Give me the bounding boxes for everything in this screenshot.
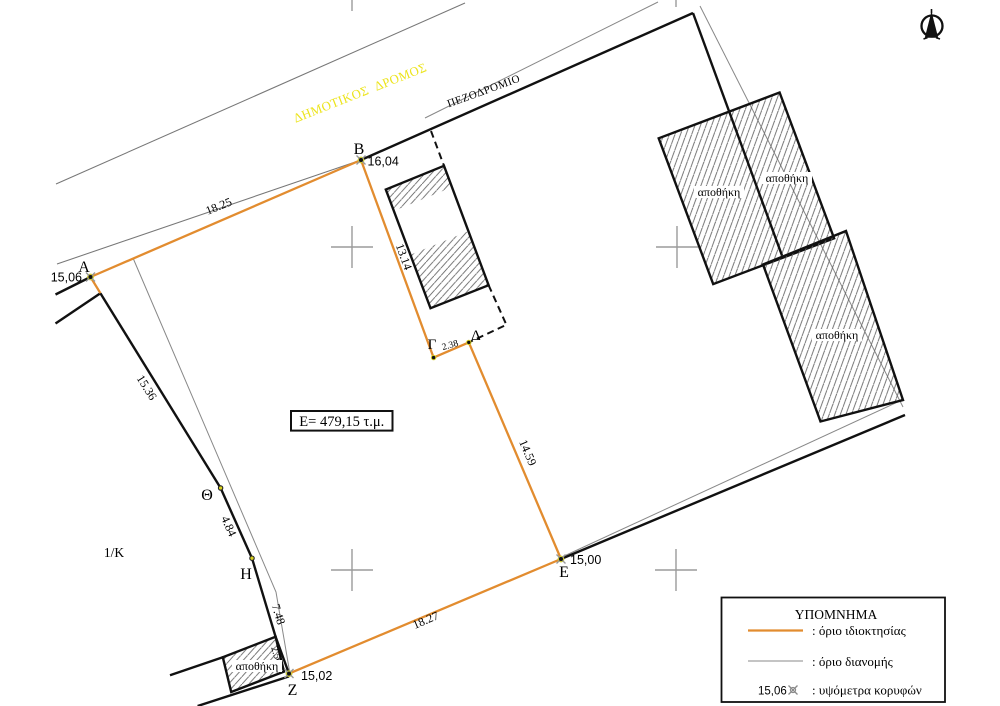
- svg-text:αποθήκη: αποθήκη: [236, 659, 279, 673]
- svg-text:ΥΠOMNHMA: ΥΠOMNHMA: [795, 607, 878, 622]
- svg-text:αποθήκη: αποθήκη: [698, 185, 741, 199]
- svg-text:Δ: Δ: [471, 328, 481, 344]
- svg-text:15,06: 15,06: [51, 271, 82, 285]
- svg-text:E= 479,15 τ.μ.: E= 479,15 τ.μ.: [299, 414, 384, 430]
- svg-text:: όριο διανομής: : όριο διανομής: [812, 654, 894, 669]
- svg-text:1/K: 1/K: [104, 545, 125, 560]
- svg-text:15.36: 15.36: [134, 372, 160, 402]
- svg-text:Θ: Θ: [201, 487, 213, 504]
- svg-text:2.38: 2.38: [441, 339, 460, 353]
- svg-text:18.27: 18.27: [410, 608, 440, 631]
- svg-text:15,02: 15,02: [301, 669, 332, 683]
- svg-text:15,00: 15,00: [570, 553, 601, 567]
- svg-text:16,04: 16,04: [368, 155, 399, 169]
- svg-text:αποθήκη: αποθήκη: [816, 328, 859, 342]
- svg-text:15,06: 15,06: [758, 686, 787, 698]
- svg-text:: όριο ιδιοκτησίας: : όριο ιδιοκτησίας: [812, 623, 907, 638]
- svg-text:4.84: 4.84: [218, 514, 239, 539]
- svg-text:E: E: [559, 564, 569, 581]
- svg-text:B: B: [354, 141, 365, 158]
- svg-text:H: H: [240, 566, 252, 583]
- svg-text:: υψόμετρα κορυφών: : υψόμετρα κορυφών: [812, 683, 922, 698]
- svg-text:αποθήκη: αποθήκη: [766, 171, 809, 185]
- svg-text:Γ: Γ: [428, 337, 437, 353]
- svg-text:18.25: 18.25: [203, 195, 233, 218]
- svg-text:Z: Z: [288, 682, 298, 699]
